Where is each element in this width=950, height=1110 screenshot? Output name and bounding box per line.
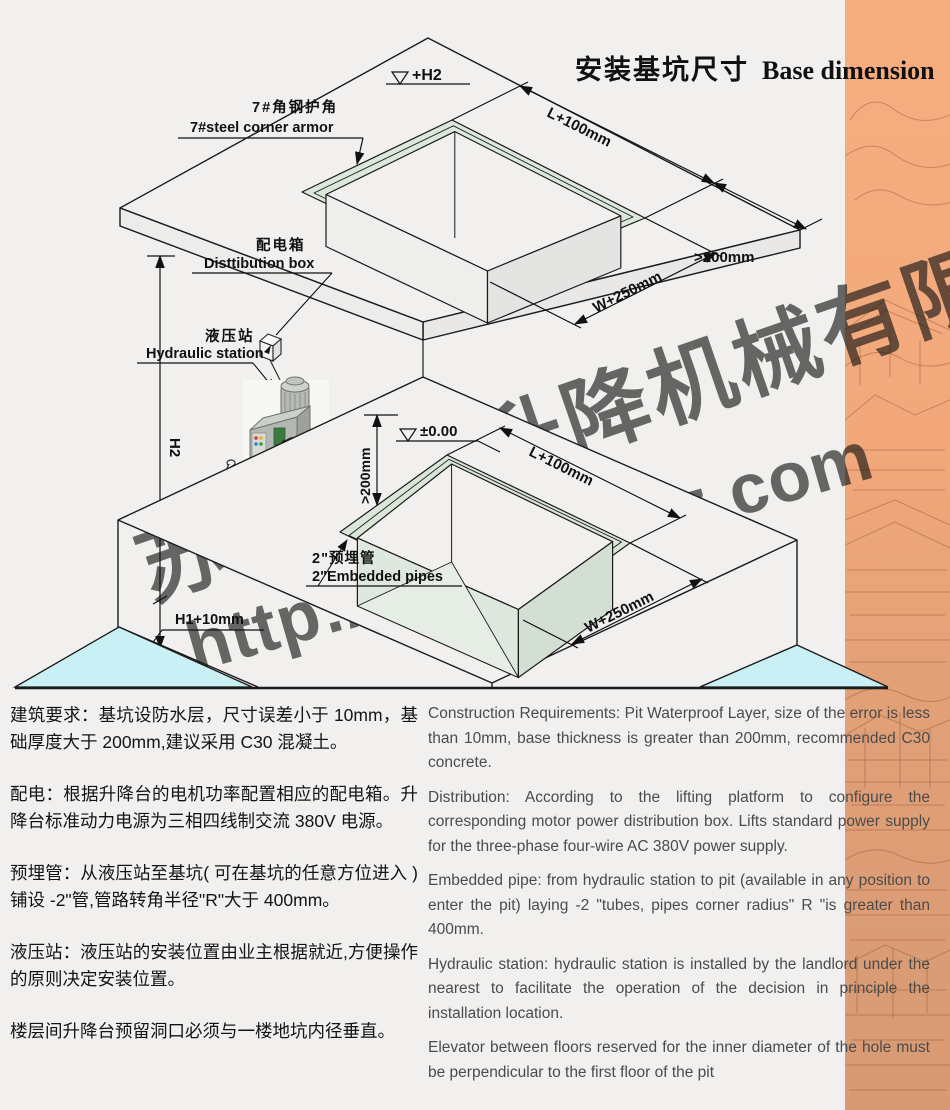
- svg-text:2"预埋管: 2"预埋管: [312, 549, 375, 567]
- svg-text:Disttibution box: Disttibution box: [204, 256, 314, 272]
- svg-text:液压站: 液压站: [205, 327, 255, 345]
- page-title-en: Base dimension: [762, 56, 935, 86]
- svg-text:+H2: +H2: [412, 67, 442, 84]
- svg-text:>200mm: >200mm: [357, 448, 373, 504]
- note-zh-embedded-pipe: 预埋管：从液压站至基坑( 可在基坑的任意方位进入 )铺设 -2"管,管路转角半径…: [10, 860, 418, 914]
- note-en-construction: Construction Requirements: Pit Waterproo…: [428, 702, 930, 776]
- svg-text:±0.00: ±0.00: [420, 423, 457, 440]
- svg-text:配电箱: 配电箱: [256, 236, 306, 254]
- note-en-hydraulic: Hydraulic station: hydraulic station is …: [428, 953, 930, 1027]
- page-title: 安装基坑尺寸 Base dimension: [575, 48, 935, 87]
- svg-text:2"Embedded pipes: 2"Embedded pipes: [312, 569, 443, 585]
- svg-text:7#角钢护角: 7#角钢护角: [252, 98, 338, 116]
- note-zh-construction: 建筑要求：基坑设防水层，尺寸误差小于 10mm，基础厚度大于 200mm,建议采…: [10, 702, 418, 756]
- svg-text:H1+10mm: H1+10mm: [175, 612, 244, 628]
- note-zh-distribution: 配电：根据升降台的电机功率配置相应的配电箱。升降台标准动力电源为三相四线制交流 …: [10, 781, 418, 835]
- note-en-embedded-pipe: Embedded pipe: from hydraulic station to…: [428, 869, 930, 943]
- page-title-zh: 安装基坑尺寸: [575, 48, 749, 87]
- page: { "title": { "zh": "安装基坑尺寸", "en": "Base…: [0, 0, 950, 1110]
- svg-text:7#steel corner armor: 7#steel corner armor: [190, 120, 334, 136]
- note-zh-floor-hole: 楼层间升降台预留洞口必须与一楼地坑内径垂直。: [10, 1018, 418, 1045]
- pit-installation-diagram: 苏州卓禹升降机械有限公司 http://www.sjjsz.com +H2 L+…: [0, 0, 950, 700]
- svg-text:Hydraulic station: Hydraulic station: [146, 346, 264, 362]
- svg-text:>200mm: >200mm: [694, 249, 754, 266]
- note-en-floor-hole: Elevator between floors reserved for the…: [428, 1036, 930, 1085]
- notes-english: Construction Requirements: Pit Waterproo…: [428, 702, 930, 1095]
- notes-chinese: 建筑要求：基坑设防水层，尺寸误差小于 10mm，基础厚度大于 200mm,建议采…: [10, 702, 418, 1070]
- note-en-distribution: Distribution: According to the lifting p…: [428, 786, 930, 860]
- svg-text:H2: H2: [166, 438, 183, 457]
- note-zh-hydraulic: 液压站：液压站的安装位置由业主根据就近,方便操作的原则决定安装位置。: [10, 939, 418, 993]
